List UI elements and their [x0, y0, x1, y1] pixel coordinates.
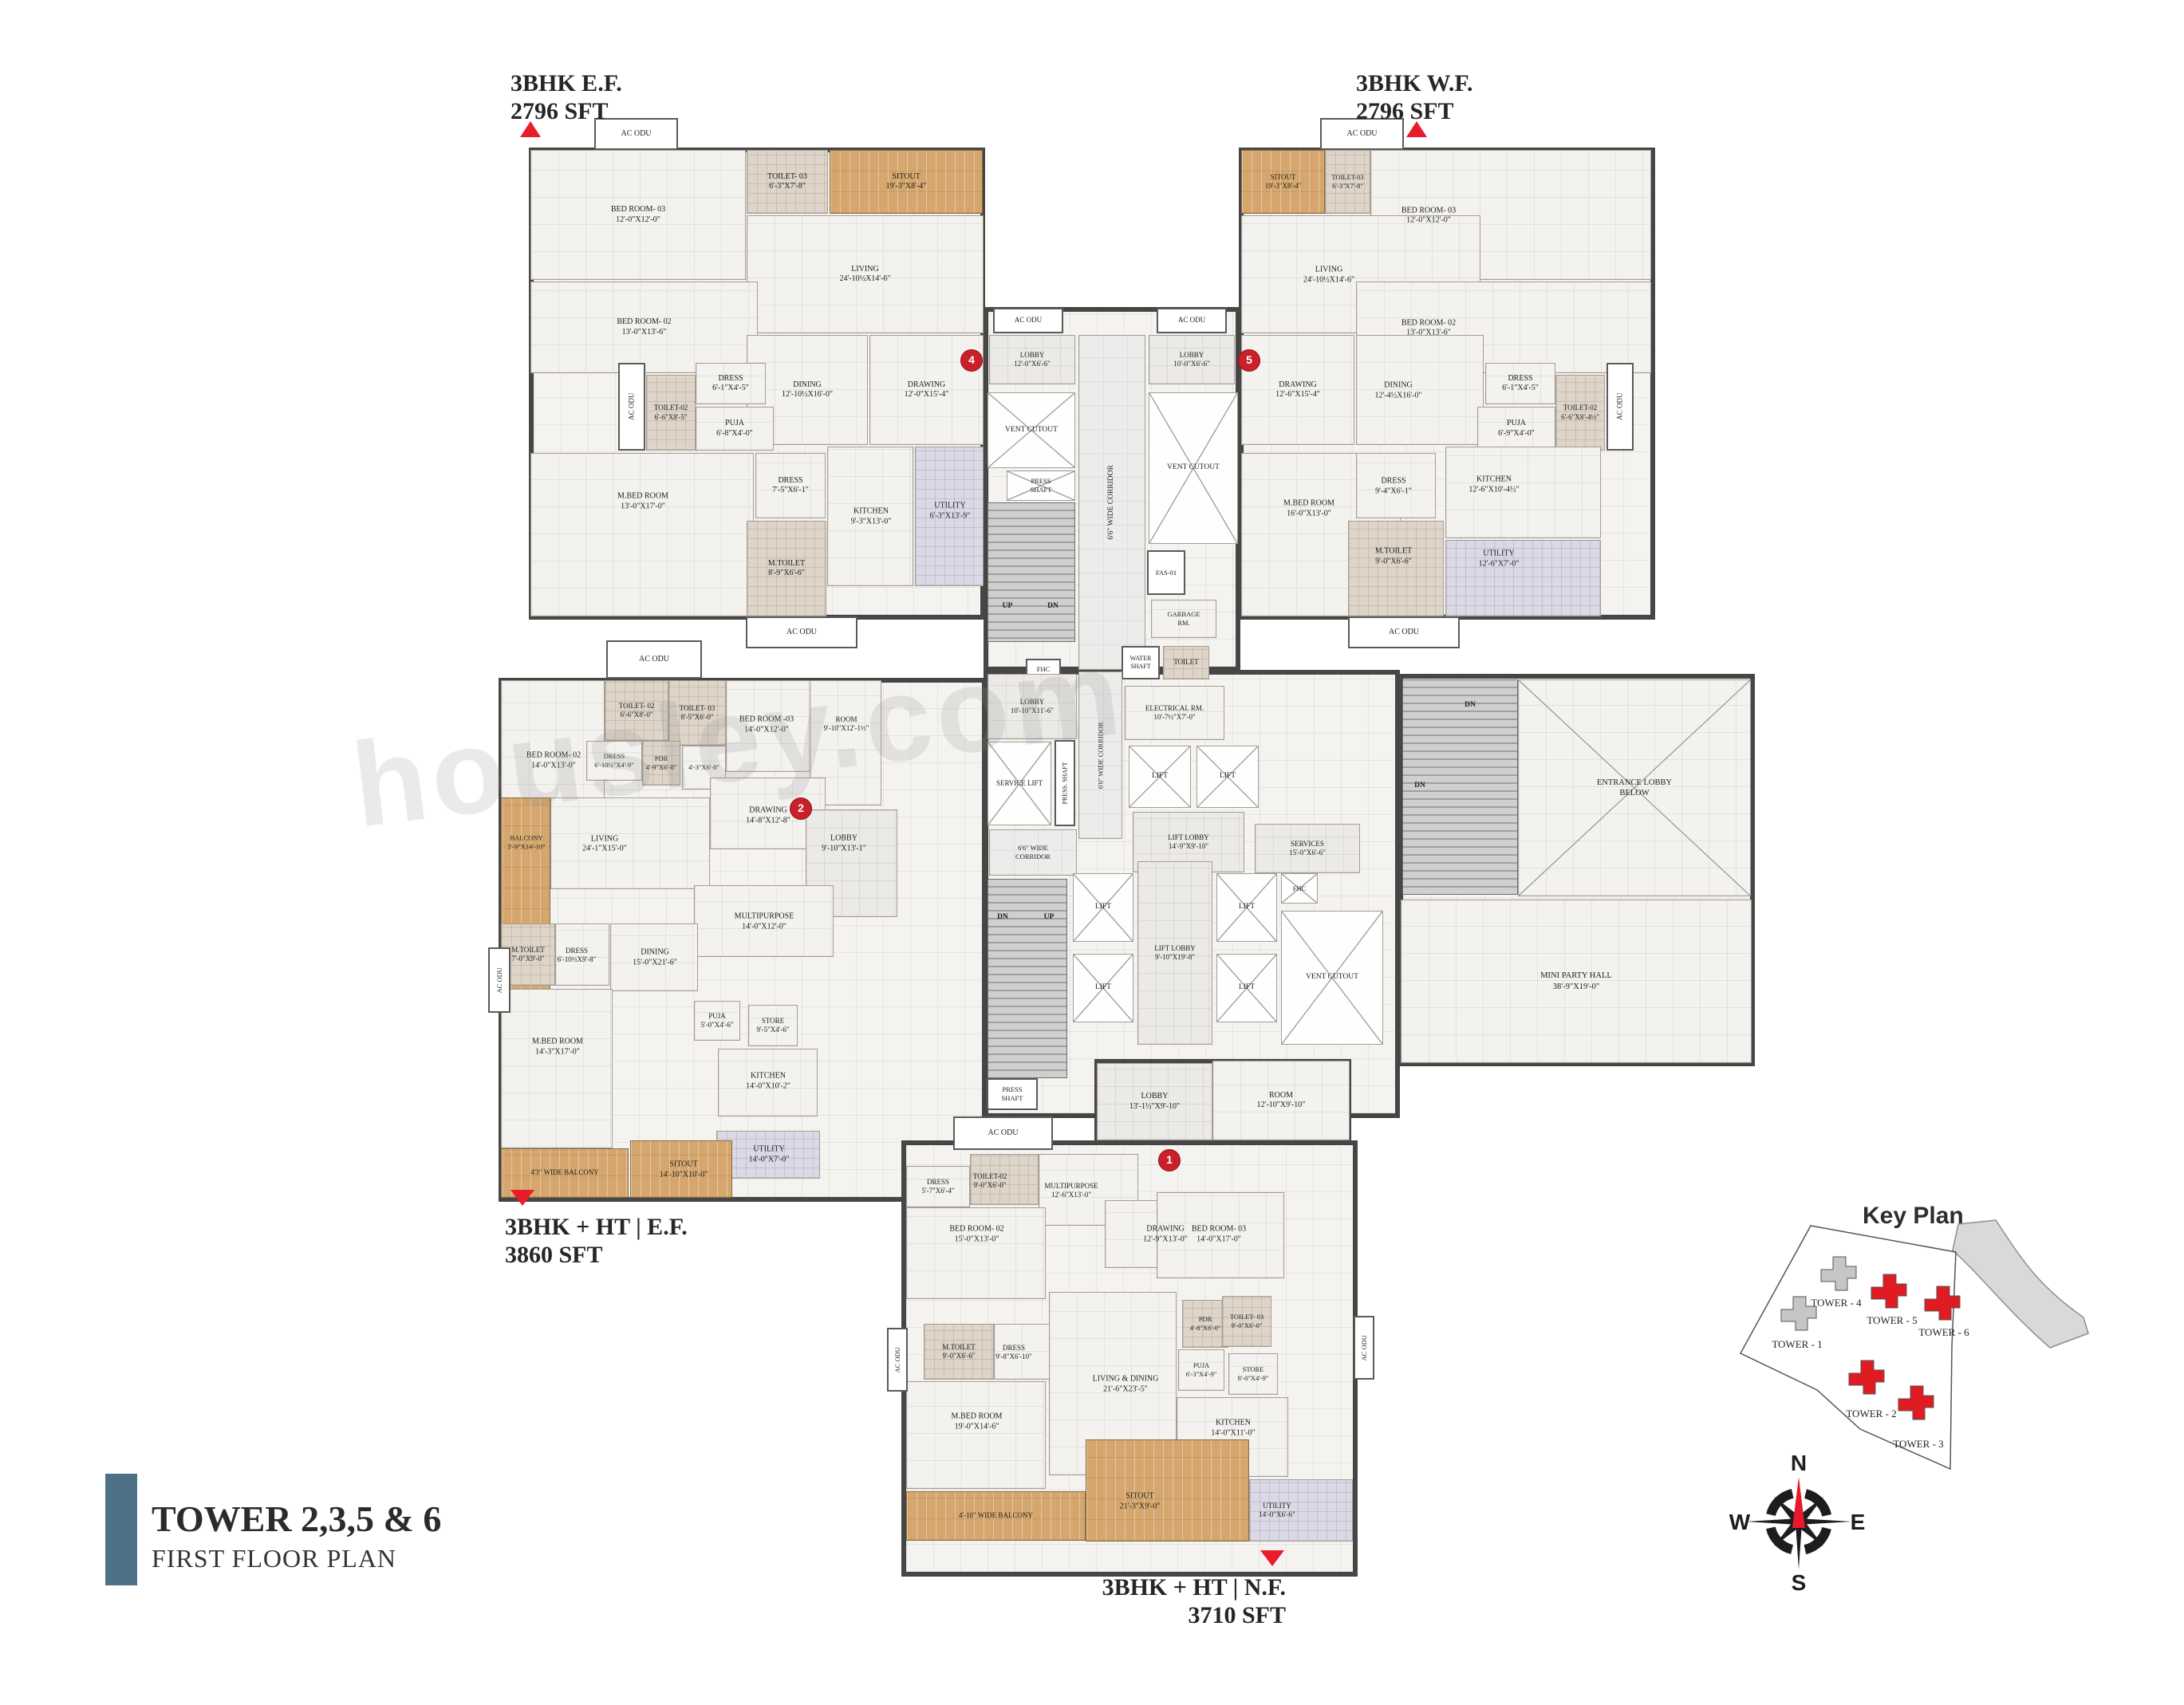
acodu-a-left: AC ODU: [618, 363, 645, 451]
compass-e-label: E: [1851, 1510, 1866, 1534]
puja-b-label: PUJA6'-9"X4'-0": [1498, 419, 1535, 439]
toilet3-d: TOILET- 039'-0"X6'-0": [1222, 1296, 1271, 1347]
toilet-core-label: TOILET: [1173, 658, 1198, 667]
corridor-h-label: 6'6" WIDECORRIDOR: [1015, 844, 1051, 860]
unit-2-label-type: 3BHK + HT | E.F.: [505, 1214, 728, 1242]
utility-d: UTILITY14'-0"X6'-6": [1249, 1479, 1353, 1542]
service-lift: SERVICE LIFT: [988, 742, 1051, 825]
bedroom2-a-label: BED ROOM- 0213'-0"X13'-6": [617, 317, 671, 337]
badge-2-label: 2: [798, 801, 804, 816]
garbage-rm: GARBAGERM.: [1151, 600, 1216, 638]
bedroom2-d-label: BED ROOM- 0215'-0"X13'-0": [949, 1225, 1003, 1245]
lift-3-label: LIFT: [1095, 903, 1111, 912]
dress2-b: DRESS9'-4"X6'-1": [1356, 453, 1436, 518]
keyplan-tower-label-3: TOWER - 5: [1867, 1314, 1917, 1326]
mini-party-hall: MINI PARTY HALL38'-9"X19'-0": [1401, 900, 1752, 1063]
toilet3-b-label: TOILET-036'-3"X7'-8": [1331, 173, 1363, 190]
unit-5-label-area: 2796 SFT: [1356, 98, 1539, 126]
acodu-core-4: AC ODU: [993, 308, 1063, 333]
stairs-upper: [988, 502, 1075, 642]
lift-lobby-2-label: LIFT LOBBY9'-10"X19'-8": [1154, 944, 1196, 963]
toilet-core: TOILET: [1163, 646, 1209, 679]
utility-a: UTILITY6'-3"X13'-9": [915, 447, 984, 586]
services: SERVICES15'-0"X6'-6": [1255, 824, 1360, 873]
puja-a-label: PUJA6'-8"X4'-0": [716, 419, 753, 439]
mtoilet-d: M.TOILET9'-0"X6'-6": [924, 1324, 994, 1380]
up-lower: UP: [1035, 911, 1062, 925]
room-d-label: ROOM12'-10"X9'-10": [1257, 1091, 1306, 1111]
balcony-d-label: 4'-10" WIDE BALCONY: [959, 1511, 1033, 1520]
toilet3-b: TOILET-036'-3"X7'-8": [1325, 150, 1370, 214]
compass-north-needle: [1792, 1477, 1805, 1528]
compass-south-needle: [1796, 1523, 1802, 1569]
store-c: STORE9'-5"X4'-6": [748, 1005, 798, 1046]
sitout-a-label: SITOUT19'-3"X8'-4": [886, 172, 927, 192]
puja-a: PUJA6'-8"X4'-0": [696, 407, 774, 451]
balcony-c-label: BALCONY5'-9"X14'-10": [507, 833, 545, 850]
water-shaft: WATERSHAFT: [1122, 646, 1160, 679]
acodu-d-left-label: AC ODU: [893, 1347, 902, 1372]
badge-5-label: 5: [1246, 353, 1252, 368]
store-c-label: STORE9'-5"X4'-6": [756, 1017, 789, 1035]
lobby-5-label: LOBBY10'-0"X6'-6": [1173, 351, 1210, 369]
toilet2-b: TOILET-026'-6"X8'-4½": [1555, 375, 1605, 451]
acodu-core-5: AC ODU: [1157, 308, 1227, 333]
title-accent-bar: [105, 1474, 137, 1585]
toilet2-b-label: TOILET-026'-6"X8'-4½": [1561, 404, 1599, 422]
stairs-lower: [988, 879, 1067, 1078]
corridor-upper-label: 6'6" WIDE CORRIDOR: [1107, 465, 1117, 540]
press-shaft-upper: PRESSSHAFT: [1007, 471, 1075, 501]
toilet2-c-label: TOILET- 026'-6"X8'-0": [619, 702, 655, 720]
puja-b: PUJA6'-9"X4'-0": [1477, 407, 1555, 451]
kitchen-a: KITCHEN9'-3"X13'-0": [827, 447, 913, 586]
acodu-b-bottom: AC ODU: [1348, 616, 1460, 648]
lobby-4: LOBBY12'-0"X6'-6": [989, 335, 1075, 384]
dress1-c-label: DRESS6'-10½"X4'-9": [594, 752, 633, 769]
up-upper-label: UP: [1003, 602, 1013, 612]
pdr-d-label: PDR4'-8"X6'-0": [1190, 1315, 1221, 1332]
lobby-d: LOBBY13'-1½"X9'-10": [1097, 1063, 1212, 1140]
bedroom2-a: BED ROOM- 0213'-0"X13'-6": [530, 282, 758, 373]
vent-upper-left-label: VENT CUTOUT: [1005, 426, 1058, 435]
press-shaft-upper-label: PRESSSHAFT: [1031, 477, 1052, 494]
dining-b: DINING12'-4½X16'-0": [1356, 335, 1484, 445]
lift-lobby-1-label: LIFT LOBBY14'-9"X9'-10": [1168, 833, 1209, 852]
acodu-b-right: AC ODU: [1606, 363, 1634, 451]
fhc-right: FHC: [1281, 873, 1318, 904]
press-shaft-mid: PRESS. SHAFT: [1055, 740, 1075, 826]
unit-2-label-marker: [511, 1190, 534, 1206]
mtoilet-c-label: M.TOILET7'-0"X9'-0": [511, 946, 545, 964]
press-shaft-mid-label: PRESS. SHAFT: [1061, 762, 1069, 805]
balcony-d: 4'-10" WIDE BALCONY: [906, 1491, 1086, 1541]
living-c-label: LIVING24'-1"X15'-0": [582, 834, 627, 854]
lift-5: LIFT: [1216, 873, 1277, 942]
mbed-c-label: M.BED ROOM14'-3"X17'-0": [532, 1038, 583, 1057]
toilet3-c: TOILET- 038'-5"X6'-0": [668, 680, 726, 746]
dining-c: DINING15'-0"X21'-6": [610, 923, 698, 991]
entrance-lobby: ENTRANCE LOBBYBELOW: [1518, 679, 1751, 896]
vent-upper-right: VENT CUTOUT: [1149, 392, 1238, 544]
acodu-a-bottom-label: AC ODU: [786, 628, 817, 638]
electrical-rm: ELECTRICAL RM.10'-7½"X7'-0": [1125, 686, 1224, 740]
toilet3-c-label: TOILET- 038'-5"X6'-0": [680, 704, 716, 723]
toilet2-a-label: TOILET-026'-6"X8'-5": [654, 404, 688, 422]
keyplan-tower-shape-5: [1849, 1360, 1884, 1394]
keyplan-tower-label-1: TOWER - 4: [1811, 1297, 1862, 1309]
pdr-c-label: PDR4'-9"X6'-8": [646, 754, 677, 771]
dress2-c: DRESS6'-10½X9'-8": [555, 923, 609, 986]
dn-right-2-label: DN: [1414, 782, 1425, 791]
utility-b-label: UTILITY12'-6"X7'-0": [1479, 549, 1520, 569]
bedroom3-d-label: BED ROOM- 0314'-0"X17'-0": [1192, 1225, 1246, 1245]
unit-4-label: 3BHK E.F.2796 SFT: [511, 70, 694, 125]
puja-d: PUJA6'-3"X4'-9": [1178, 1349, 1224, 1391]
corridor-upper: 6'6" WIDE CORRIDOR: [1078, 335, 1145, 670]
dress1-a-label: DRESS6'-1"X4'-5": [712, 374, 749, 394]
bedroom3-c-label: BED ROOM -0314'-0"X12'-0": [739, 715, 794, 735]
floor-plan-page: AC ODUBED ROOM- 0312'-0"X12'-0"TOILET- 0…: [0, 0, 2184, 1705]
multipurpose-c: MULTIPURPOSE14'-0"X12'-0": [694, 885, 834, 957]
utility-d-label: UTILITY14'-0"X6'-6": [1259, 1502, 1295, 1520]
mtoilet-a: M.TOILET8'-9"X6'-6": [747, 521, 826, 616]
mtoilet-d-label: M.TOILET9'-0"X6'-6": [942, 1343, 976, 1361]
compass-n-label: N: [1791, 1451, 1807, 1475]
vent-lower-label: VENT CUTOUT: [1306, 973, 1358, 982]
acodu-core-5-label: AC ODU: [1178, 316, 1205, 325]
keyplan-tower-label-6: TOWER - 3: [1893, 1438, 1943, 1450]
compass: N W E S: [1727, 1450, 1871, 1593]
mbed-d: M.BED ROOM19'-0"X14'-6": [906, 1381, 1046, 1489]
press-shaft-lower: PRESSSHAFT: [987, 1078, 1038, 1110]
kitchen-b: KITCHEN12'-6"X10'-4½": [1445, 447, 1601, 538]
acodu-c-left: AC ODU: [488, 947, 511, 1013]
toilet3-a: TOILET- 036'-3"X7'-8": [747, 150, 828, 214]
unit-5-label-type: 3BHK W.F.: [1356, 70, 1539, 98]
mbed-a: M.BED ROOM13'-0"X17'-0": [530, 453, 754, 616]
unit-4-label-type: 3BHK E.F.: [511, 70, 694, 98]
fas-01: FAS-01: [1147, 550, 1185, 595]
unit-5-label: 3BHK W.F.2796 SFT: [1356, 70, 1539, 125]
up-lower-label: UP: [1044, 913, 1055, 923]
living-b-label: LIVING24'-10½X14'-6": [1303, 266, 1354, 285]
kitchen-a-label: KITCHEN9'-3"X13'-0": [851, 507, 892, 527]
unit-1-label-type: 3BHK + HT | N.F.: [1077, 1574, 1286, 1602]
compass-w-label: W: [1729, 1510, 1751, 1534]
keyplan-tower-shape-6: [1898, 1386, 1934, 1420]
dn-upper-label: DN: [1047, 602, 1058, 612]
unit-1-label: 3BHK + HT | N.F.3710 SFT: [1077, 1574, 1286, 1629]
mbed-c: M.BED ROOM14'-3"X17'-0": [501, 989, 613, 1148]
unit-5-label-marker: [1406, 121, 1427, 137]
badge-5: 5: [1238, 349, 1260, 372]
page-title: TOWER 2,3,5 & 6: [152, 1498, 441, 1540]
dress1-b: DRESS6'-1"X4'-5": [1485, 363, 1555, 404]
dims-c-label: 4'-3"X6'-8": [688, 763, 719, 772]
bedroom2-b-label: BED ROOM- 0213'-0"X13'-6": [1401, 318, 1456, 338]
acodu-b-right-label: AC ODU: [1615, 393, 1624, 420]
compass-rose: N W E S: [1727, 1450, 1871, 1593]
lift-2: LIFT: [1196, 746, 1259, 808]
service-lift-label: SERVICE LIFT: [996, 779, 1043, 788]
living-a-label: LIVING24'-10½X14'-6": [839, 265, 890, 285]
puja-d-label: PUJA6'-3"X4'-9": [1186, 1361, 1217, 1378]
vent-lower: VENT CUTOUT: [1281, 911, 1383, 1045]
bedroom2-c-label: BED ROOM- 0214'-0"X13'-0": [526, 751, 581, 771]
toilet2-d: TOILET-029'-0"X6'-0": [970, 1154, 1039, 1205]
corridor-h: 6'6" WIDECORRIDOR: [989, 829, 1077, 876]
bedroom3-a: BED ROOM- 0312'-0"X12'-0": [530, 150, 746, 280]
puja-c: PUJA5'-0"X4'-6": [694, 1001, 740, 1041]
livdin-d-label: LIVING & DINING21'-6"X23'-5": [1093, 1375, 1159, 1395]
lift-3: LIFT: [1073, 873, 1133, 942]
drawing-a-label: DRAWING12'-0"X15'-4": [905, 380, 949, 400]
lift-lobby-2: LIFT LOBBY9'-10"X19'-8": [1137, 861, 1212, 1045]
lobby-mid: LOBBY10'-10"X11'-6": [988, 674, 1077, 739]
mbed-d-label: M.BED ROOM19'-0"X14'-6": [952, 1412, 1003, 1432]
keyplan-tower-label-5: TOWER - 2: [1846, 1408, 1896, 1420]
corridor-mid: 6'6" WIDE CORRIDOR: [1078, 671, 1122, 839]
lift-4: LIFT: [1073, 954, 1133, 1022]
sitout-a: SITOUT19'-3"X8'-4": [830, 150, 983, 214]
dn-upper: DN: [1039, 600, 1067, 614]
mbed-a-label: M.BED ROOM13'-0"X17'-0": [617, 492, 668, 512]
keyplan-tower-label-2: TOWER - 1: [1772, 1338, 1822, 1350]
dining-b-label: DINING12'-4½X16'-0": [1374, 381, 1421, 401]
mtoilet-b-label: M.TOILET9'-0"X6'-6": [1375, 547, 1412, 567]
acodu-a-top-label: AC ODU: [621, 129, 651, 140]
drawing-b-label: DRAWING12'-6"X15'-4": [1275, 380, 1320, 400]
store-d: STORE8'-0"X4'-9": [1228, 1353, 1278, 1395]
sitout-b-label: SITOUT19'-3"X8'-4": [1265, 173, 1302, 191]
sitout-d: SITOUT21'-3"X9'-0": [1086, 1439, 1249, 1542]
room-c-label: ROOM9'-10"X12'-1½": [824, 715, 869, 734]
badge-1-label: 1: [1166, 1153, 1173, 1168]
kitchen-c: KITCHEN14'-0"X10'-2": [718, 1049, 818, 1116]
entrance-lobby-label: ENTRANCE LOBBYBELOW: [1597, 778, 1672, 798]
dn-lower-label: DN: [997, 913, 1008, 923]
living-c: LIVING24'-1"X15'-0": [550, 797, 710, 889]
services-label: SERVICES15'-0"X6'-6": [1289, 840, 1326, 858]
badge-1: 1: [1158, 1149, 1181, 1171]
acodu-b-top-label: AC ODU: [1346, 129, 1377, 140]
mtoilet-b: M.TOILET9'-0"X6'-6": [1348, 521, 1444, 616]
utility-a-label: UTILITY6'-3"X13'-9": [930, 502, 971, 522]
acodu-a-left-label: AC ODU: [627, 393, 636, 420]
unit-1-label-area: 3710 SFT: [1077, 1602, 1286, 1630]
acodu-c-top: AC ODU: [606, 640, 702, 679]
lift-1-label: LIFT: [1152, 772, 1168, 782]
lobby-c-label: LOBBY9'-10"X13'-1": [822, 834, 866, 854]
unit-2-label: 3BHK + HT | E.F.3860 SFT: [505, 1214, 728, 1269]
mini-party-hall-label: MINI PARTY HALL38'-9"X19'-0": [1540, 971, 1612, 991]
road-shape: [1953, 1220, 2088, 1348]
garbage-rm-label: GARBAGERM.: [1167, 610, 1200, 627]
page-subtitle: FIRST FLOOR PLAN: [152, 1544, 396, 1573]
acodu-d-top: AC ODU: [953, 1116, 1053, 1150]
acodu-c-top-label: AC ODU: [639, 655, 669, 665]
lobby-4-label: LOBBY12'-0"X6'-6": [1014, 351, 1051, 369]
dress1-a: DRESS6'-1"X4'-5": [696, 363, 766, 404]
lobby-5: LOBBY10'-0"X6'-6": [1149, 335, 1235, 384]
lift-6-label: LIFT: [1239, 983, 1255, 993]
mbed-b-label: M.BED ROOM16'-0"X13'-0": [1283, 499, 1334, 519]
utility-c-label: UTILITY14'-0"X7'-0": [749, 1145, 790, 1165]
keyplan-tower-shape-1: [1821, 1257, 1856, 1290]
dress2-b-label: DRESS9'-4"X6'-1": [1375, 477, 1412, 497]
water-shaft-label: WATERSHAFT: [1130, 655, 1152, 671]
fhc-right-label: FHC: [1293, 884, 1307, 893]
lobby-d-label: LOBBY13'-1½"X9'-10": [1129, 1092, 1180, 1112]
dining-a-label: DINING12'-10½X16'-0": [782, 380, 833, 400]
fas-01-label: FAS-01: [1156, 569, 1177, 577]
toilet2-c: TOILET- 026'-6"X8'-0": [605, 680, 668, 741]
living-a: LIVING24'-10½X14'-6": [747, 215, 984, 333]
dress2-a-label: DRESS7'-5"X6'-1": [772, 476, 809, 496]
mtoilet-a-label: M.TOILET8'-9"X6'-6": [768, 559, 805, 579]
lift-6: LIFT: [1216, 954, 1277, 1022]
dn-right-2: DN: [1406, 779, 1433, 793]
toilet3-d-label: TOILET- 039'-0"X6'-0": [1230, 1313, 1263, 1329]
corridor-mid-label: 6'6" WIDE CORRIDOR: [1096, 722, 1105, 789]
up-upper: UP: [993, 600, 1022, 614]
bedroom2-d: BED ROOM- 0215'-0"X13'-0": [906, 1207, 1046, 1299]
lift-5-label: LIFT: [1239, 903, 1255, 912]
press-shaft-lower-label: PRESSSHAFT: [1002, 1085, 1023, 1102]
acodu-a-bottom: AC ODU: [746, 616, 857, 648]
multipurpose-d-label: MULTIPURPOSE12'-6"X13'-0": [1044, 1182, 1098, 1200]
keyplan-tower-shape-3: [1871, 1274, 1906, 1308]
utility-b: UTILITY12'-6"X7'-0": [1445, 540, 1601, 616]
dress1-d: DRESS5'-7"X6'-4": [906, 1166, 970, 1207]
dress1-d-label: DRESS5'-7"X6'-4": [921, 1178, 954, 1196]
unit-4-label-marker: [520, 121, 541, 137]
vent-upper-left: VENT CUTOUT: [988, 392, 1075, 468]
lift-1: LIFT: [1129, 746, 1191, 808]
balcony2-c-label: 4'3" WIDE BALCONY: [530, 1168, 599, 1177]
dress2-c-label: DRESS6'-10½X9'-8": [558, 947, 597, 965]
fhc-top-label: FHC: [1037, 665, 1051, 674]
badge-4-label: 4: [968, 353, 975, 368]
drawing-c-label: DRAWING14'-8"X12'-8": [746, 806, 790, 826]
badge-2: 2: [790, 797, 812, 820]
acodu-d-right: AC ODU: [1354, 1316, 1374, 1380]
dn-right-1-label: DN: [1465, 701, 1476, 711]
sitout-c: SITOUT14'-10"X10'-0": [630, 1140, 732, 1198]
vent-upper-right-label: VENT CUTOUT: [1167, 463, 1220, 473]
drawing-b: DRAWING12'-6"X15'-4": [1241, 335, 1354, 445]
kitchen-c-label: KITCHEN14'-0"X10'-2": [746, 1072, 790, 1092]
acodu-d-left: AC ODU: [887, 1328, 908, 1392]
toilet2-d-label: TOILET-029'-0"X6'-0": [973, 1172, 1007, 1191]
badge-4: 4: [960, 349, 983, 372]
dn-lower: DN: [989, 911, 1016, 925]
kitchen-d-label: KITCHEN14'-0"X11'-0": [1211, 1419, 1255, 1439]
store-d-label: STORE8'-0"X4'-9": [1238, 1365, 1269, 1382]
dress1-b-label: DRESS6'-1"X4'-5": [1502, 374, 1539, 394]
acodu-c-left-label: AC ODU: [495, 967, 504, 993]
drawing-d-label: DRAWING12'-9"X13'-0": [1143, 1225, 1188, 1245]
dress2-d-label: DRESS9'-8"X6'-10": [995, 1344, 1032, 1362]
puja-c-label: PUJA5'-0"X4'-6": [700, 1012, 733, 1030]
kitchen-b-label: KITCHEN12'-6"X10'-4½": [1468, 475, 1519, 495]
room-d: ROOM12'-10"X9'-10": [1212, 1061, 1350, 1140]
lift-4-label: LIFT: [1095, 983, 1111, 993]
pdr-c: PDR4'-9"X6'-8": [642, 741, 680, 786]
dining-c-label: DINING15'-0"X21'-6": [633, 948, 677, 968]
keyplan-tower-label-4: TOWER - 6: [1918, 1326, 1969, 1338]
bedroom3-b-label: BED ROOM- 0312'-0"X12'-0": [1401, 206, 1456, 226]
bedroom3-a-label: BED ROOM- 0312'-0"X12'-0": [611, 205, 665, 225]
electrical-rm-label: ELECTRICAL RM.10'-7½"X7'-0": [1145, 704, 1204, 723]
dress1-c: DRESS6'-10½"X4'-9": [586, 741, 642, 781]
sitout-c-label: SITOUT14'-10"X10'-0": [660, 1160, 708, 1180]
lift-2-label: LIFT: [1220, 772, 1236, 782]
dress2-a: DRESS7'-5"X6'-1": [755, 453, 826, 518]
acodu-d-right-label: AC ODU: [1360, 1335, 1369, 1360]
toilet2-a: TOILET-026'-6"X8'-5": [646, 375, 696, 451]
lobby-mid-label: LOBBY10'-10"X11'-6": [1011, 698, 1054, 716]
sitout-d-label: SITOUT21'-3"X9'-0": [1120, 1492, 1161, 1512]
unit-2-label-area: 3860 SFT: [505, 1242, 728, 1270]
unit-1-label-marker: [1260, 1550, 1284, 1566]
compass-s-label: S: [1792, 1570, 1807, 1593]
multipurpose-c-label: MULTIPURPOSE14'-0"X12'-0": [735, 912, 794, 932]
acodu-core-4-label: AC ODU: [1015, 316, 1042, 325]
sitout-b: SITOUT19'-3"X8'-4": [1241, 150, 1325, 214]
acodu-b-bottom-label: AC ODU: [1389, 628, 1419, 638]
acodu-d-top-label: AC ODU: [988, 1128, 1018, 1139]
dn-right-1: DN: [1457, 699, 1484, 713]
toilet3-a-label: TOILET- 036'-3"X7'-8": [767, 172, 807, 192]
